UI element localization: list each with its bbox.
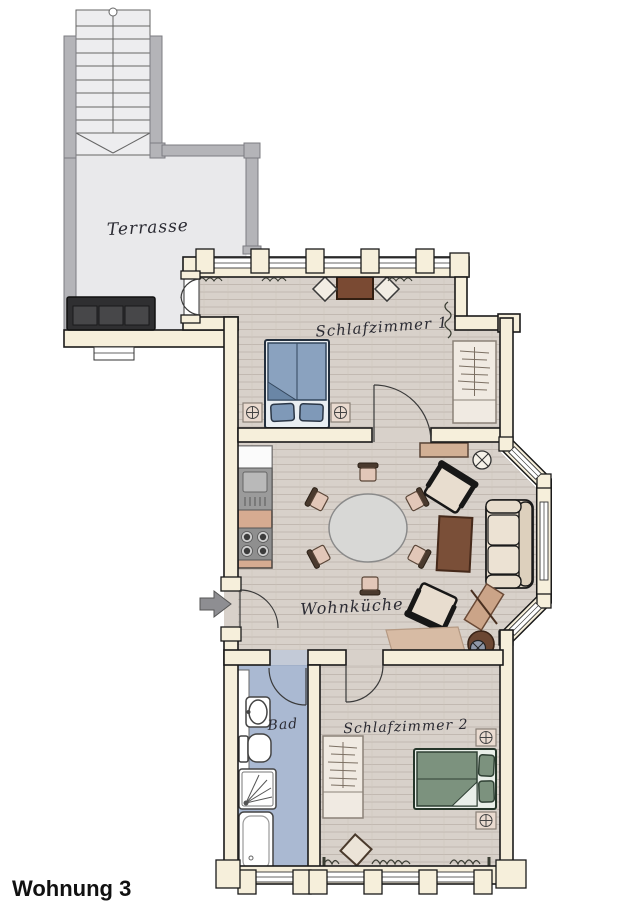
nightstand-bedroom2-top <box>476 729 496 746</box>
wardrobe-bedroom1 <box>453 341 496 423</box>
bedroom1-door-opening <box>372 428 431 442</box>
pillow <box>271 403 295 421</box>
corner-pier-sw <box>216 860 240 888</box>
corner-pier-se <box>496 860 526 888</box>
pillow <box>300 404 324 422</box>
floor-plan: Terrasse Schlafzimmer 1 <box>0 0 640 906</box>
shower <box>239 769 276 809</box>
nightstand-bedroom1-left <box>243 403 262 422</box>
bathtub <box>239 812 273 873</box>
toilet <box>239 734 271 762</box>
kitchen-counter <box>238 446 272 568</box>
kitchen-sink <box>238 446 272 468</box>
cooktop <box>238 528 272 560</box>
stair-wall-left <box>64 36 76 158</box>
pillow <box>478 755 494 777</box>
south-windows <box>238 870 492 894</box>
dining-chair <box>358 463 378 481</box>
bath-label: Bad <box>266 716 299 734</box>
french-door-terrace <box>181 271 200 323</box>
pillow <box>479 781 495 803</box>
bedroom2-door-opening <box>346 650 383 665</box>
stair-start-marker <box>109 8 117 16</box>
stair-wall-right <box>150 36 162 158</box>
bath-door-opening <box>270 650 308 665</box>
entry-opening <box>224 590 238 628</box>
dining-chair <box>360 577 380 595</box>
oven <box>238 468 272 510</box>
terrace-steps <box>94 347 134 360</box>
double-bed-blue <box>265 340 329 428</box>
nightstand-bedroom1-right <box>331 403 350 422</box>
terrace-label: Terrasse <box>106 216 189 240</box>
staircase <box>64 8 165 158</box>
sideboard <box>420 443 468 457</box>
wardrobe-bedroom2 <box>323 736 363 818</box>
sofa <box>486 500 533 588</box>
outlet-symbol-living <box>473 451 491 469</box>
window-table-bedroom1 <box>337 277 373 299</box>
dining-table <box>329 494 407 562</box>
terrace-sofa <box>67 297 155 330</box>
double-bed-green <box>414 749 496 809</box>
plan-title: Wohnung 3 <box>12 876 131 901</box>
nightstand-bedroom2-bottom <box>476 812 496 829</box>
terrace-south-wall <box>64 330 226 347</box>
bath-sink <box>246 697 270 727</box>
coffee-table <box>437 516 473 572</box>
